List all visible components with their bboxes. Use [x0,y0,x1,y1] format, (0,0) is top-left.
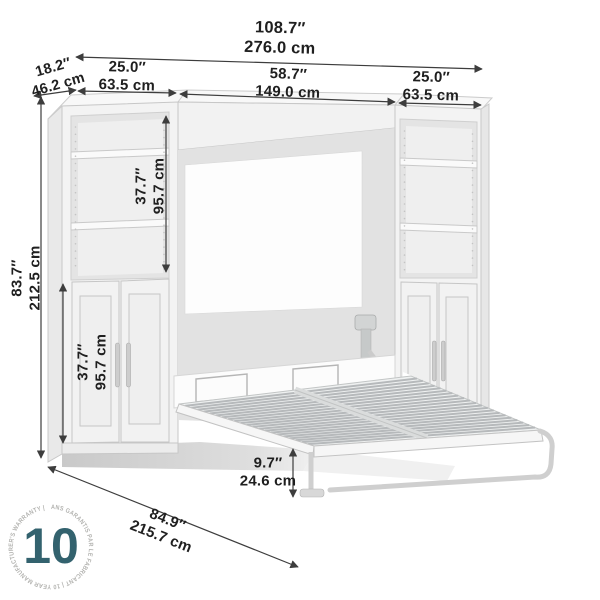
shelf-pin-hole [472,206,474,208]
shelf-pin-hole [404,167,406,169]
dimension-value-cm: 149.0 cm [255,83,321,104]
shelf-pin-hole [75,243,77,245]
shelf-pin-hole [404,189,406,191]
right-tower-side-panel [481,104,489,430]
shelf-pin-hole [472,265,474,267]
shelf-pin-hole [404,130,406,132]
shelf-pin-hole [163,254,165,256]
dimension-value-inches: 58.7″ [256,65,322,86]
shelf-pin-hole [404,218,406,220]
dimension-label-bed-section-width: 58.7″ 149.0 cm [255,65,321,104]
door-handle [442,341,446,381]
shelf-pin-hole [472,221,474,223]
shelf-pin-hole [75,258,77,260]
shelf-pin-hole [472,243,474,245]
shelf-pin-hole [404,145,406,147]
shelf-pin-hole [75,250,77,252]
shelf-pin-hole [163,246,165,248]
shelf-pin-hole [404,174,406,176]
shelf-pin-hole [472,162,474,164]
shelf-pin-hole [472,155,474,157]
shelf-pin-hole [75,148,77,150]
shelf-pin-hole [472,257,474,259]
shelf-pin-hole [163,224,165,226]
shelf-pin-hole [75,170,77,172]
shelf-pin-hole [75,141,77,143]
right-tower-back-panel [406,126,472,273]
dimension-value-cm: 63.5 cm [402,86,459,106]
shelf-pin-hole [472,133,474,135]
shelf-pin-hole [404,152,406,154]
product-dimension-diagram: 108.7″ 276.0 cm 18.2″ 46.2 cm 25.0″ 63.5… [0,0,600,600]
shelf-pin-hole [472,170,474,172]
shelf-pin-hole [472,199,474,201]
shelf-pin-hole [404,138,406,140]
shelf-pin-hole [75,185,77,187]
dimension-value-inches: 108.7″ [244,17,316,39]
dimension-label-overall-width: 108.7″ 276.0 cm [244,17,316,59]
shelf-pin-hole [163,261,165,263]
shelf-pin-hole [404,240,406,242]
shelf-pin-hole [75,155,77,157]
shelf-pin-hole [163,217,165,219]
shelf-pin-hole [404,232,406,234]
shelf-pin-hole [75,199,77,201]
shelf-pin-hole [472,192,474,194]
dimension-value-cm: 276.0 cm [244,37,316,59]
dimension-value-cm: 95.7 cm [151,158,169,214]
shelf-pin-hole [163,268,165,270]
shelf-pin-hole [75,236,77,238]
bed-leg-foot [300,489,324,497]
shelf-pin-hole [404,159,406,161]
shelf-pin-hole [163,232,165,234]
door-handle [433,341,437,381]
dimension-value-inches: 37.7″ [75,334,93,390]
shelf-pin-hole [472,235,474,237]
shelf-pin-hole [163,151,165,153]
shelf-pin-hole [472,214,474,216]
shelf-pin-hole [404,211,406,213]
dimension-value-inches: 37.7″ [133,158,151,214]
shelf-pin-hole [404,203,406,205]
shelf-pin-hole [75,265,77,267]
dimension-value-cm: 212.5 cm [27,246,45,311]
shelf-pin-hole [404,254,406,256]
warranty-badge: ANS GARANTIS PAR LE FABRICANT | 10 YEAR … [2,498,102,598]
shelf-pin-hole [472,228,474,230]
shelf-pin-hole [75,214,77,216]
door-handle [127,343,131,387]
shelf-pin-hole [404,225,406,227]
shelf-pin-hole [75,163,77,165]
dimension-value-inches: 25.0″ [99,58,156,78]
shelf-pin-hole [404,196,406,198]
shelf-pin-hole [163,130,165,132]
shelf-pin-hole [472,141,474,143]
dimension-label-lower-section-height: 37.7″ 95.7 cm [75,334,112,390]
left-tower-plinth [62,443,178,454]
shelf-pin-hole [75,134,77,136]
dimension-label-left-tower-width: 25.0″ 63.5 cm [98,58,155,96]
door-handle [116,343,120,387]
dimension-label-right-tower-width: 25.0″ 63.5 cm [402,68,459,106]
shelf-pin-hole [472,177,474,179]
left-tower-side-panel [48,106,62,462]
shelf-pin-hole [472,184,474,186]
shelf-pin-hole [163,122,165,124]
shelf-pin-hole [472,148,474,150]
shelf-pin-hole [75,126,77,128]
warranty-number: 10 [23,518,79,574]
shelf-pin-hole [404,262,406,264]
dimension-value-cm: 95.7 cm [93,334,111,390]
shelf-pin-hole [75,192,77,194]
dimension-value-inches: 25.0″ [403,68,460,88]
shelf-pin-hole [472,250,474,252]
shelf-pin-hole [75,221,77,223]
cavity-back-panel [185,151,362,314]
dimension-value-cm: 63.5 cm [98,76,155,96]
shelf-pin-hole [75,228,77,230]
left-cabinet-door-panel [129,294,160,424]
dimension-label-overall-height: 83.7″ 212.5 cm [9,246,46,311]
shelf-pin-hole [75,207,77,209]
dimension-label-bed-clearance: 9.7″ 24.6 cm [240,455,296,492]
dimension-value-cm: 24.6 cm [240,473,296,491]
dimension-value-inches: 9.7″ [240,455,296,473]
dimension-label-upper-section-height: 37.7″ 95.7 cm [133,158,170,214]
shelf-pin-hole [75,177,77,179]
shelf-pin-hole [404,181,406,183]
dimension-value-inches: 83.7″ [9,246,27,311]
piston-cap [355,315,376,330]
shelf-pin-hole [163,144,165,146]
shelf-pin-hole [163,239,165,241]
shelf-pin-hole [163,137,165,139]
shelf-pin-hole [404,269,406,271]
shelf-pin-hole [404,247,406,249]
